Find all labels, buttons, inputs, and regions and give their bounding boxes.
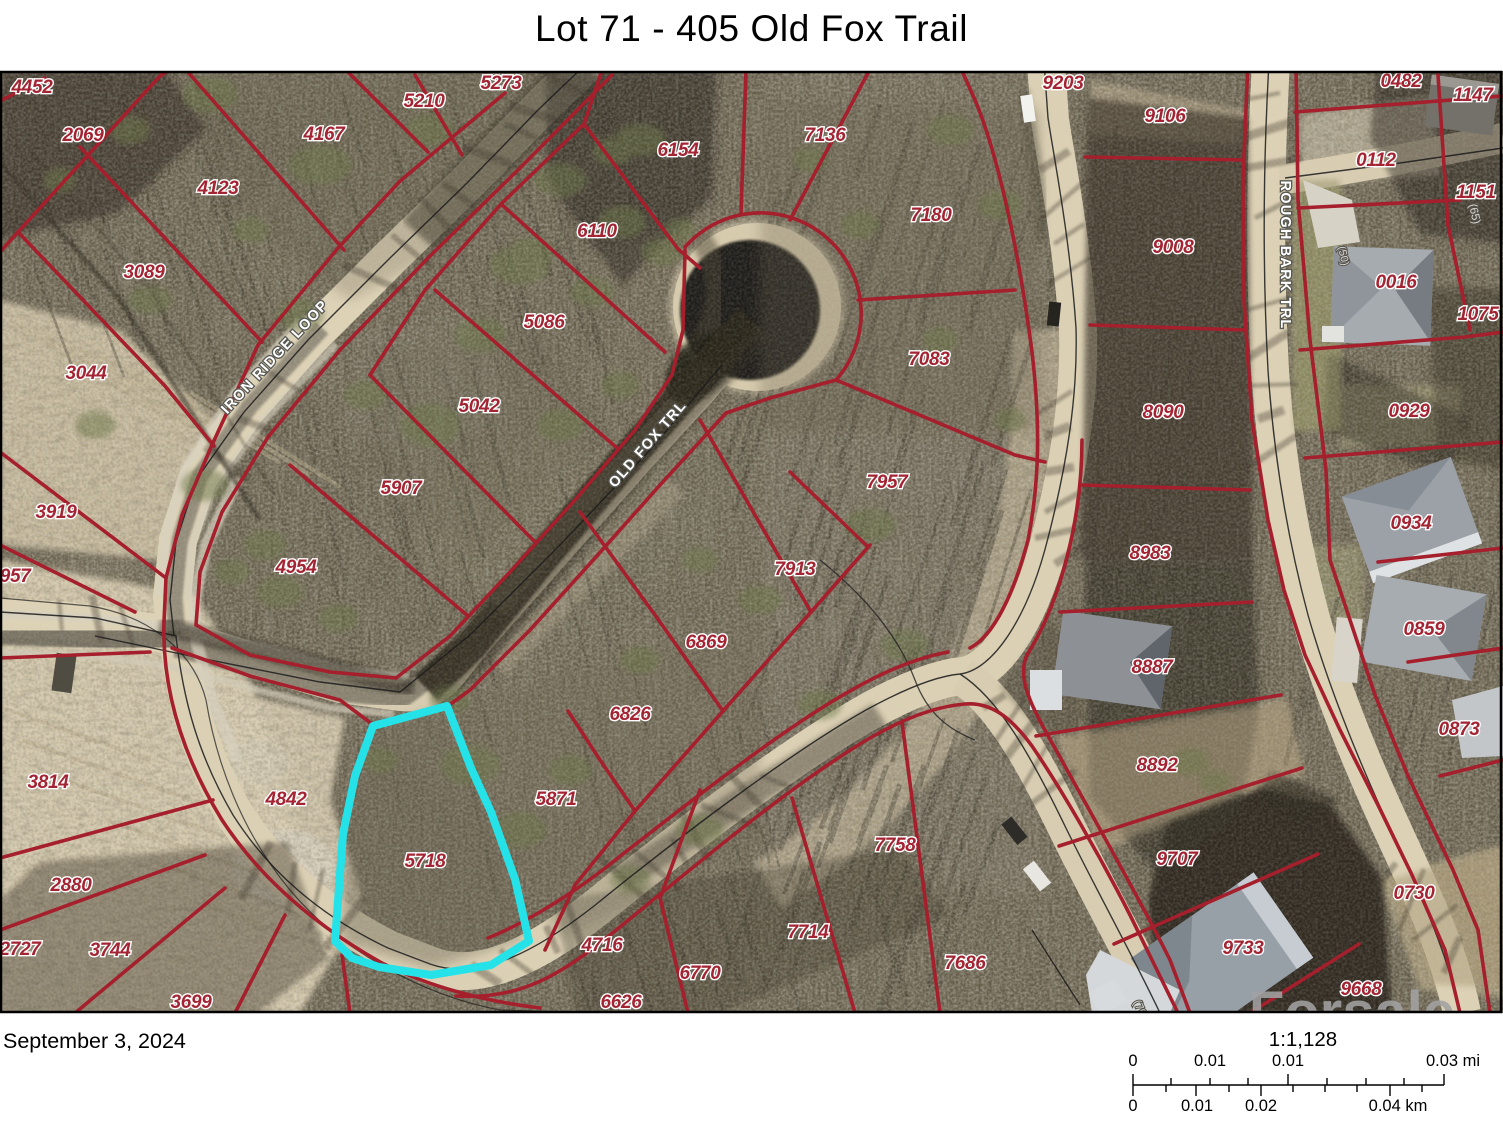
svg-text:0.02: 0.02: [1245, 1097, 1277, 1115]
svg-text:0: 0: [1128, 1052, 1137, 1070]
svg-text:0.01: 0.01: [1194, 1052, 1226, 1070]
svg-text:0.01: 0.01: [1181, 1097, 1213, 1115]
svg-text:0.01: 0.01: [1272, 1052, 1304, 1070]
svg-text:0: 0: [1128, 1097, 1137, 1115]
svg-text:0.03 mi: 0.03 mi: [1426, 1052, 1480, 1070]
svg-text:1:1,128: 1:1,128: [1269, 1028, 1337, 1051]
svg-text:0.04 km: 0.04 km: [1369, 1097, 1428, 1115]
